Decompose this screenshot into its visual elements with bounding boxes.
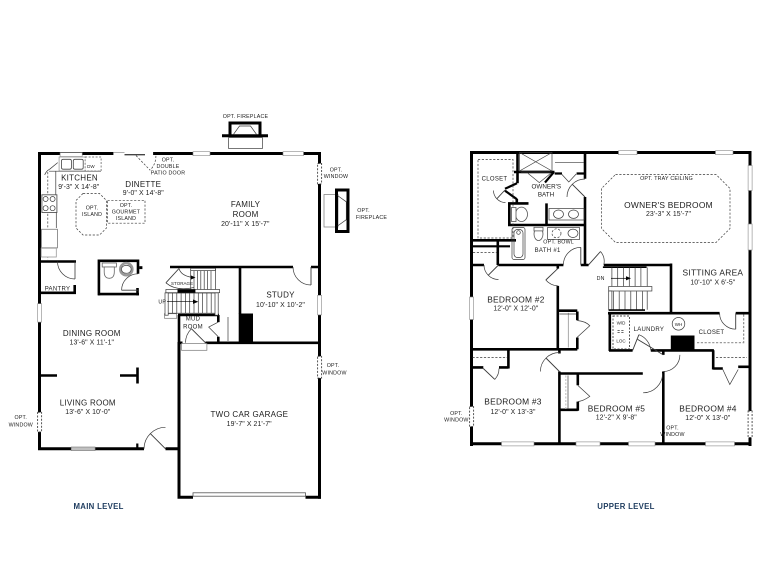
svg-text:OPT. BOWL: OPT. BOWL [543,239,574,245]
svg-text:LOC: LOC [616,339,626,344]
svg-text:OPT.: OPT. [330,168,343,174]
svg-text:DN: DN [597,276,605,282]
svg-text:PATIO DOOR: PATIO DOOR [151,171,185,177]
svg-text:CLOSET: CLOSET [482,177,508,183]
svg-text:WINDOW: WINDOW [444,418,468,424]
svg-text:OPT.: OPT. [86,206,99,212]
svg-text:OPT.: OPT. [15,415,28,421]
svg-text:MAIN LEVEL: MAIN LEVEL [73,502,123,511]
svg-text:13'-6" X 10'-0": 13'-6" X 10'-0" [65,409,110,416]
svg-text:SITTING AREA: SITTING AREA [683,268,744,278]
svg-text:MUD: MUD [186,317,201,323]
svg-text:BEDROOM #2: BEDROOM #2 [487,294,545,304]
svg-text:PANTRY: PANTRY [45,287,71,293]
svg-text:BEDROOM #4: BEDROOM #4 [679,404,737,414]
svg-text:KITCHEN: KITCHEN [61,173,98,182]
svg-text:BEDROOM #5: BEDROOM #5 [588,403,646,413]
svg-text:LIVING ROOM: LIVING ROOM [60,399,116,408]
svg-text:DINING ROOM: DINING ROOM [63,329,121,338]
svg-text:WINDOW: WINDOW [9,423,33,429]
svg-text:10'-10" X 10'-2": 10'-10" X 10'-2" [256,302,305,309]
svg-text:9'-0" X 14'-8": 9'-0" X 14'-8" [123,190,165,197]
svg-text:OWNER'S: OWNER'S [532,184,562,191]
svg-text:FIREPLACE: FIREPLACE [356,215,388,221]
svg-text:OPT. TRAY CEILING: OPT. TRAY CEILING [640,176,693,182]
svg-text:12'-2" X 9'-8": 12'-2" X 9'-8" [596,415,638,422]
svg-text:BATH: BATH [538,191,555,198]
svg-text:STORAGE: STORAGE [171,281,193,286]
svg-text:OPT.: OPT. [450,411,463,417]
svg-text:BATH #1: BATH #1 [535,248,561,254]
svg-text:TWO CAR GARAGE: TWO CAR GARAGE [211,410,289,419]
svg-text:DW: DW [87,164,95,169]
svg-text:UPPER LEVEL: UPPER LEVEL [597,502,654,511]
svg-text:19'-7" X 21'-7": 19'-7" X 21'-7" [227,421,272,428]
svg-text:OWNER'S BEDROOM: OWNER'S BEDROOM [624,200,713,210]
svg-text:WINDOW: WINDOW [660,432,684,438]
svg-text:13'-6" X 11'-1": 13'-6" X 11'-1" [70,340,115,347]
svg-text:DOUBLE: DOUBLE [157,164,180,170]
svg-text:WINDOW: WINDOW [322,371,346,377]
svg-text:GOURMET: GOURMET [112,210,141,216]
svg-text:10'-10" X 6'-5": 10'-10" X 6'-5" [690,280,735,287]
svg-text:ISLAND: ISLAND [116,216,136,222]
svg-text:DINETTE: DINETTE [125,180,161,189]
svg-text:23'-3" X 15'-7": 23'-3" X 15'-7" [646,211,691,218]
svg-text:12'-0" X 13'-0": 12'-0" X 13'-0" [685,415,730,422]
svg-text:9'-3" X 14'-8": 9'-3" X 14'-8" [58,184,100,191]
svg-text:OPT. FIREPLACE: OPT. FIREPLACE [223,114,269,120]
svg-text:LAUNDRY: LAUNDRY [634,327,665,333]
svg-text:ROOM: ROOM [233,210,259,219]
svg-text:CLOSET: CLOSET [699,330,725,336]
svg-text:WH: WH [675,322,683,327]
svg-text:FAMILY: FAMILY [231,200,261,209]
svg-text:ISLAND: ISLAND [82,212,102,218]
svg-text:UP: UP [158,299,166,305]
svg-text:12'-0" X 12'-0": 12'-0" X 12'-0" [493,306,538,313]
svg-text:20'-11" X 15'-7": 20'-11" X 15'-7" [221,221,270,228]
svg-text:OPT.: OPT. [666,426,679,432]
svg-text:OPT.: OPT. [162,158,175,164]
svg-text:WINDOW: WINDOW [324,174,348,180]
svg-text:12'-0" X 13'-3": 12'-0" X 13'-3" [490,409,535,416]
svg-text:STUDY: STUDY [266,291,295,300]
svg-text:OPT.: OPT. [120,203,133,209]
svg-text:ROOM: ROOM [183,325,203,331]
svg-text:BEDROOM #3: BEDROOM #3 [484,397,542,407]
svg-text:OPT.: OPT. [327,363,340,369]
svg-text:W/D: W/D [617,321,626,326]
svg-text:OPT.: OPT. [357,208,370,214]
